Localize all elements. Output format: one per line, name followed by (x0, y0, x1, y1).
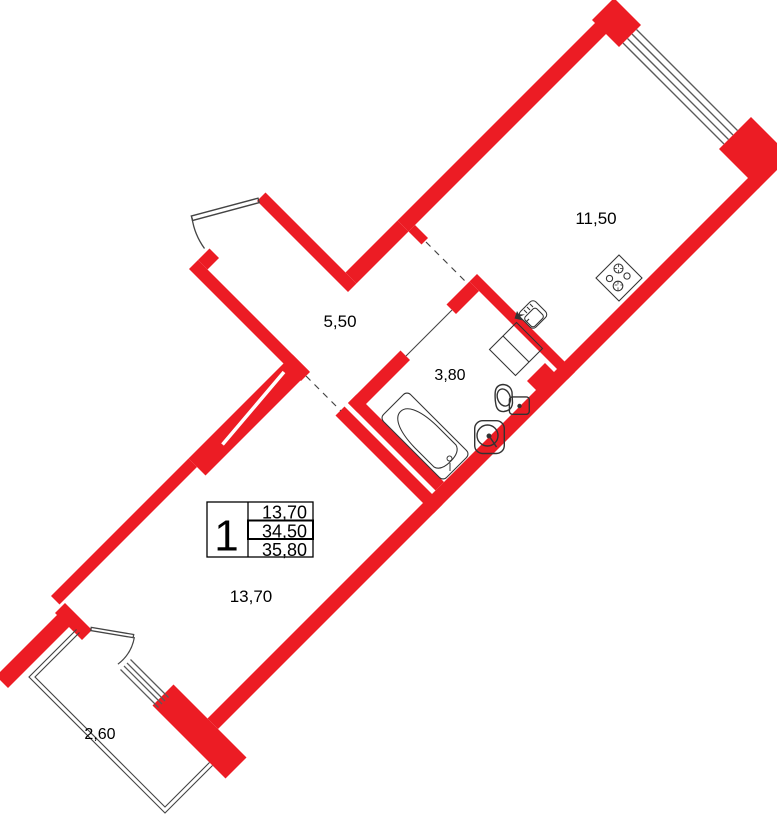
svg-text:5,50: 5,50 (323, 312, 356, 331)
svg-text:11,50: 11,50 (575, 209, 616, 228)
svg-text:35,80: 35,80 (262, 540, 307, 560)
svg-text:13,70: 13,70 (230, 587, 273, 606)
svg-text:13,70: 13,70 (262, 503, 307, 523)
svg-text:3,80: 3,80 (434, 367, 465, 384)
svg-text:1: 1 (214, 512, 238, 561)
svg-text:34,50: 34,50 (262, 522, 307, 542)
svg-text:2,60: 2,60 (84, 726, 115, 743)
